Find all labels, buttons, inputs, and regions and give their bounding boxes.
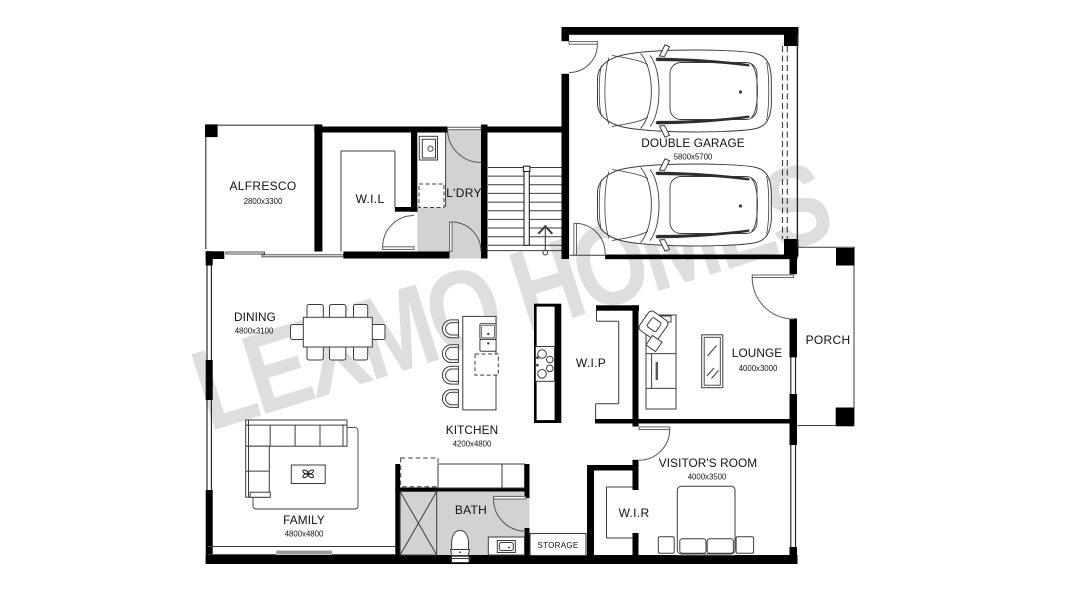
svg-text:4000x3000: 4000x3000 <box>739 364 778 373</box>
svg-text:4200x4800: 4200x4800 <box>453 440 492 449</box>
svg-text:W.I.R: W.I.R <box>619 506 650 520</box>
svg-text:W.I.P: W.I.P <box>576 356 606 370</box>
svg-text:5800x5700: 5800x5700 <box>674 153 713 162</box>
svg-text:W.I.L: W.I.L <box>356 192 385 206</box>
svg-text:DINING: DINING <box>234 310 276 324</box>
svg-text:LOUNGE: LOUNGE <box>732 346 782 360</box>
svg-text:ALFRESCO: ALFRESCO <box>229 179 296 193</box>
svg-text:FAMILY: FAMILY <box>283 513 325 527</box>
svg-text:DOUBLE GARAGE: DOUBLE GARAGE <box>641 136 745 150</box>
svg-text:STORAGE: STORAGE <box>537 541 578 550</box>
svg-text:BATH: BATH <box>455 503 487 517</box>
svg-text:4000x3500: 4000x3500 <box>688 473 727 482</box>
svg-text:KITCHEN: KITCHEN <box>446 423 498 437</box>
svg-text:VISITOR'S ROOM: VISITOR'S ROOM <box>659 456 757 470</box>
svg-text:4800x4800: 4800x4800 <box>285 530 324 539</box>
svg-text:L'DRY: L'DRY <box>446 186 482 200</box>
svg-text:4800x3100: 4800x3100 <box>235 327 274 336</box>
svg-text:2800x3300: 2800x3300 <box>244 197 283 206</box>
svg-text:PORCH: PORCH <box>806 333 851 347</box>
